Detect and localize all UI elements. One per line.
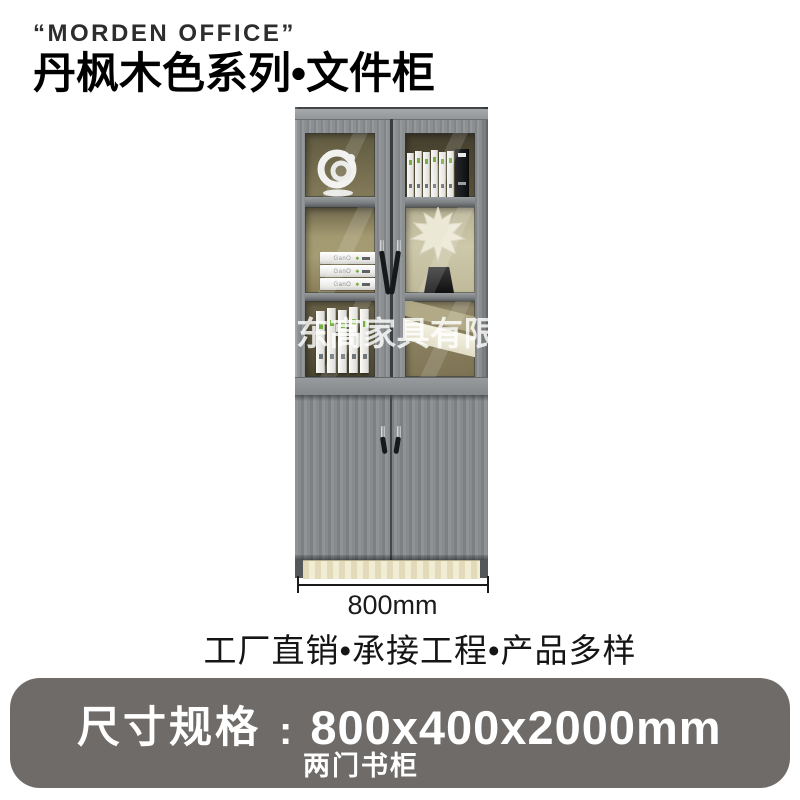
book-logo-mark <box>362 270 370 273</box>
brand-text: “MORDEN OFFICE” <box>33 20 435 48</box>
dimension-line <box>298 584 488 586</box>
solid-door-handle-right <box>395 426 402 454</box>
glass-door-handle-right <box>395 240 402 295</box>
book-spine <box>415 151 422 197</box>
spec-subtitle: 两门书柜 <box>303 744 419 783</box>
solid-doors <box>295 395 488 560</box>
sculpture-icon <box>313 143 363 197</box>
watermark-text: 东高家具有限 <box>296 307 497 355</box>
book-logo-mark <box>362 283 370 286</box>
book-spine <box>447 151 454 197</box>
flat-book: GanO ◆ <box>320 265 375 277</box>
tagline: 工厂直销•承接工程•产品多样 <box>20 624 800 672</box>
solid-door-handle-left <box>379 426 386 454</box>
product-promo-page: “MORDEN OFFICE” 丹枫木色系列•文件柜 <box>0 0 800 800</box>
diamond-icon: ◆ <box>355 255 359 261</box>
book-logo-mark <box>362 257 370 260</box>
leaf-stand <box>424 267 454 293</box>
maple-leaf-decor <box>407 207 471 293</box>
header: “MORDEN OFFICE” 丹枫木色系列•文件柜 <box>33 20 435 97</box>
cabinet-plinth <box>295 560 488 578</box>
spec-banner: 尺寸规格 : 800x400x2000mm 两门书柜 <box>10 678 790 788</box>
book-spine <box>439 152 446 197</box>
dimension-label: 800mm <box>297 590 488 621</box>
glass-panel-mid-right <box>405 207 475 293</box>
book-logo-text: GanO <box>334 281 352 287</box>
book-row <box>407 149 469 197</box>
diamond-icon: ◆ <box>355 281 359 287</box>
glass-panel-top-right <box>405 133 475 197</box>
book-logo-text: GanO <box>334 255 352 261</box>
page-title: 丹枫木色系列•文件柜 <box>33 52 435 97</box>
book-logo-text: GanO <box>334 268 352 274</box>
glass-door-handle-left <box>378 240 385 295</box>
flat-book: GanO ◆ <box>320 278 375 290</box>
diamond-icon: ◆ <box>355 268 359 274</box>
solid-door-seam <box>390 395 392 560</box>
maple-leaf-icon <box>409 207 467 265</box>
handle-grip <box>393 437 401 455</box>
glass-panel-top-left <box>305 133 375 197</box>
flat-book: GanO ◆ <box>320 252 375 264</box>
book-spine-black <box>455 149 469 197</box>
spec-colon: : <box>279 709 292 754</box>
kickboard <box>303 560 480 579</box>
book-spine <box>407 153 414 197</box>
book-spine <box>431 150 438 197</box>
spec-label: 尺寸规格 <box>77 693 261 755</box>
flat-book-stack: GanO ◆ GanO ◆ GanO ◆ <box>320 252 375 291</box>
glass-panel-mid-left: GanO ◆ GanO ◆ GanO ◆ <box>305 207 375 293</box>
book-spine <box>423 152 430 197</box>
